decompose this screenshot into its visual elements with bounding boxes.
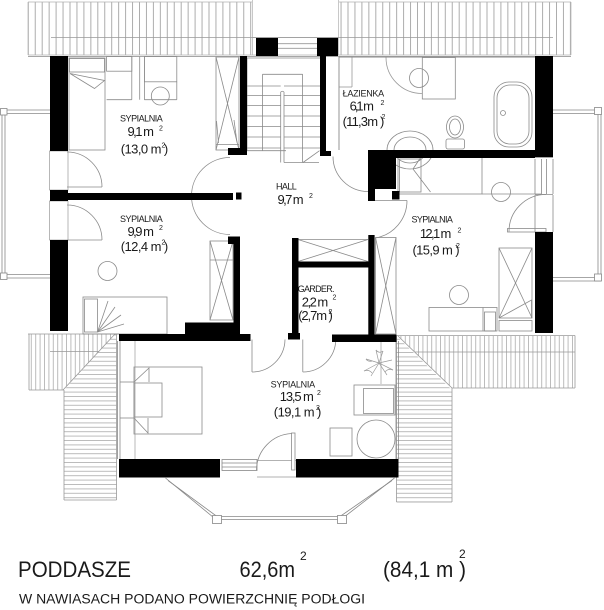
svg-text:GARDER.: GARDER.	[298, 284, 335, 294]
svg-text:W NAWIASACH PODANO POWIERZCHNI: W NAWIASACH PODANO POWIERZCHNIĘ PODŁOGI	[19, 592, 365, 607]
svg-text:2: 2	[459, 547, 466, 561]
svg-text:(19,1 m ): (19,1 m )	[274, 405, 322, 420]
svg-text:6,1 m: 6,1 m	[350, 98, 374, 113]
svg-text:SYPIALNIA: SYPIALNIA	[271, 379, 316, 389]
svg-text:SYPIALNIA: SYPIALNIA	[412, 215, 454, 225]
svg-text:13,5 m: 13,5 m	[280, 389, 314, 404]
svg-text:9,7 m: 9,7 m	[278, 192, 304, 207]
svg-text:2: 2	[162, 240, 166, 247]
svg-text:2: 2	[159, 225, 163, 232]
svg-text:2: 2	[300, 549, 307, 563]
svg-text:9,9 m: 9,9 m	[127, 224, 154, 239]
svg-text:ŁAZIENKA: ŁAZIENKA	[343, 88, 385, 98]
svg-text:(84,1 m ): (84,1 m )	[383, 557, 466, 582]
svg-text:2: 2	[159, 126, 163, 133]
svg-text:2: 2	[329, 309, 333, 316]
svg-text:2: 2	[382, 114, 386, 121]
svg-text:2: 2	[333, 295, 337, 302]
svg-text:PODDASZE: PODDASZE	[18, 557, 131, 582]
svg-text:2: 2	[317, 390, 321, 397]
svg-text:2: 2	[309, 193, 313, 200]
svg-text:2: 2	[458, 228, 462, 235]
svg-text:2: 2	[162, 143, 166, 150]
svg-text:SYPIALNIA: SYPIALNIA	[120, 113, 163, 123]
svg-text:2: 2	[316, 405, 320, 412]
svg-text:2: 2	[456, 243, 460, 250]
svg-text:9,1 m: 9,1 m	[127, 124, 154, 139]
svg-text:SYPIALNIA: SYPIALNIA	[120, 214, 163, 224]
svg-text:(15,9 m ): (15,9 m )	[412, 242, 459, 257]
svg-text:62,6m: 62,6m	[240, 557, 296, 582]
svg-text:12,1 m: 12,1 m	[420, 226, 452, 241]
svg-text:(11,3m ): (11,3m )	[343, 114, 385, 129]
svg-text:2: 2	[381, 100, 385, 107]
svg-text:HALL: HALL	[276, 182, 297, 192]
